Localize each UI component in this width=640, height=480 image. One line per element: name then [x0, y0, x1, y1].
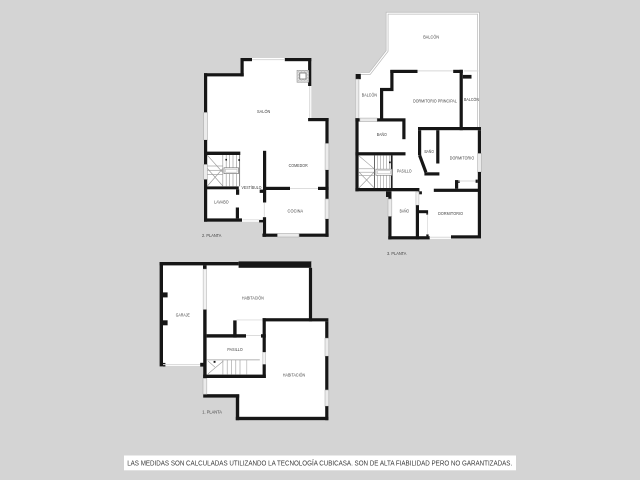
svg-text:PASILLO: PASILLO — [397, 169, 412, 174]
svg-text:DORMITORIO PRINCIPAL: DORMITORIO PRINCIPAL — [413, 99, 457, 104]
svg-text:HABITACIÓN: HABITACIÓN — [283, 372, 305, 378]
svg-text:BAÑO: BAÑO — [424, 148, 434, 154]
svg-text:LAS MEDIDAS SON CALCULADAS UTI: LAS MEDIDAS SON CALCULADAS UTILIZANDO LA… — [127, 459, 512, 468]
svg-text:DORMITORIO: DORMITORIO — [450, 156, 475, 161]
svg-text:DORMITORIO: DORMITORIO — [438, 211, 463, 216]
svg-text:BALCÓN: BALCÓN — [423, 34, 439, 40]
svg-text:1. PLANTA: 1. PLANTA — [202, 409, 222, 415]
svg-text:COMEDOR: COMEDOR — [289, 163, 309, 168]
svg-text:2. PLANTA: 2. PLANTA — [202, 233, 222, 239]
svg-text:BALCÓN: BALCÓN — [464, 96, 479, 102]
svg-text:BAÑO: BAÑO — [377, 131, 387, 137]
svg-text:HABITACIÓN: HABITACIÓN — [242, 295, 264, 301]
svg-text:SALÓN: SALÓN — [257, 108, 271, 114]
svg-text:GARAJE: GARAJE — [176, 313, 190, 318]
svg-text:BAÑO: BAÑO — [400, 208, 410, 214]
svg-text:VESTÍBULO: VESTÍBULO — [242, 184, 262, 190]
svg-text:BALCÓN: BALCÓN — [362, 92, 377, 98]
svg-text:PASILLO: PASILLO — [227, 347, 243, 352]
svg-text:3. PLANTA: 3. PLANTA — [387, 251, 407, 257]
svg-text:COCINA: COCINA — [288, 209, 304, 214]
svg-text:LAVABO: LAVABO — [214, 199, 229, 204]
